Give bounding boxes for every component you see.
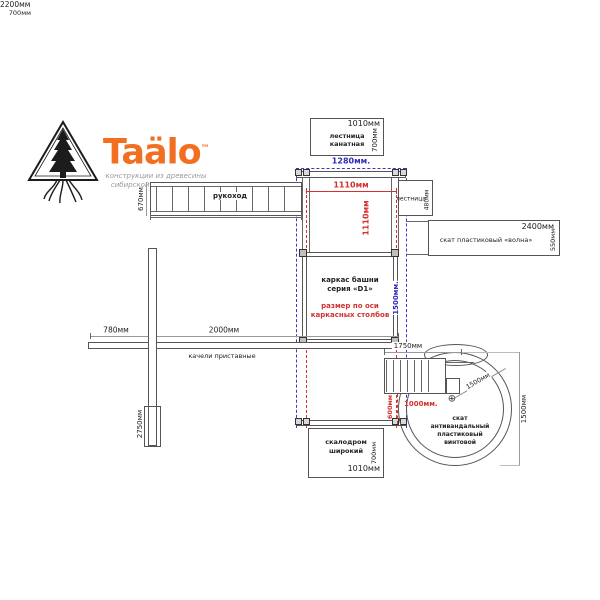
- red-dim-line: [306, 191, 396, 192]
- spiral-slide-label-line2: антивандальный: [424, 423, 496, 430]
- tower-depth-dim-blue: 1500мм.: [392, 281, 400, 315]
- stairs-length-dim: 1750мм: [392, 342, 424, 350]
- spiral-height-dim: 1500мм: [520, 395, 528, 423]
- beam-end-post-square: [295, 169, 302, 176]
- stairs-width-dim-red: 600мм: [386, 395, 394, 419]
- tower-label-line2: серия «D1»: [302, 285, 398, 293]
- swing-post-base: [144, 406, 161, 447]
- monkey-bars-height-dim: 670мм: [137, 187, 145, 211]
- wave-slide-connector-line: [406, 221, 428, 222]
- drawing-canvas: Taälo™ конструкции из древесины сибирско…: [0, 0, 600, 600]
- swing-length-dim: 2000мм: [207, 326, 241, 335]
- tower-bottom-beam: [296, 420, 406, 426]
- brand-wordmark: Taälo™: [103, 131, 210, 171]
- wave-slide-connector-line: [406, 254, 428, 255]
- climbing-wall-width-dim: 1010мм: [330, 464, 380, 473]
- spiral-dim-extension-line: [462, 352, 519, 353]
- monkey-bars-inner-rail: [151, 211, 301, 212]
- wave-slide-width-dim: 550мм: [549, 229, 557, 251]
- beam-end-post-square: [400, 169, 407, 176]
- red-dim-tick: [396, 188, 397, 194]
- monkey-bars-length-dim: 2200мм: [0, 0, 600, 9]
- dim-tick: [150, 214, 151, 220]
- side-ladder-depth-dim: 480мм: [424, 190, 431, 211]
- beam-end-post-square: [295, 418, 302, 425]
- shaft-wall-line: [302, 178, 303, 252]
- brand-text: Taälo: [103, 133, 201, 173]
- tower-label-line1: каркас башни: [302, 276, 398, 284]
- beam-post-square: [392, 169, 399, 176]
- stairs-treads: [386, 360, 432, 392]
- trademark-symbol: ™: [201, 144, 210, 154]
- dim-tick: [398, 333, 399, 339]
- red-dim-tick: [306, 188, 307, 194]
- beam-post-square: [303, 169, 310, 176]
- rope-ladder-label: лестница канатная: [310, 132, 384, 148]
- rope-ladder-label-line2: канатная: [310, 140, 384, 148]
- side-ladder-width-dim: 700мм: [0, 9, 31, 17]
- dim-tick: [384, 349, 385, 355]
- shaft-wall-line: [309, 178, 310, 252]
- stairs-landing-dim-red: 1000мм.: [404, 400, 438, 408]
- tower-inner-frame: [306, 256, 394, 340]
- spiral-slide-label-line4: винтовой: [424, 439, 496, 446]
- outer-width-dim-blue: 1280мм.: [332, 157, 370, 166]
- taalo-tree-logo-icon: [26, 120, 100, 204]
- tower-corner-post: [391, 249, 399, 257]
- stairs-landing-box: [446, 378, 460, 394]
- tower-top-beam: [296, 171, 406, 178]
- spiral-slide-label-line3: пластиковый: [424, 431, 496, 438]
- climbing-wall-depth-dim: 700мм: [370, 442, 378, 464]
- dim-tick: [90, 333, 91, 339]
- wave-slide-label: скат пластиковый «волна»: [440, 236, 533, 244]
- rope-ladder-width-dim: 1010мм: [312, 119, 380, 128]
- tower-note-line1: размер по оси: [302, 302, 398, 310]
- beam-post-square: [303, 418, 310, 425]
- wave-slide-length-dim: 2400мм: [478, 222, 554, 231]
- spiral-dim-extension-line: [500, 465, 520, 466]
- shaft-wall-line: [391, 178, 392, 252]
- tower-note-line2: каркасных столбов: [302, 311, 398, 319]
- swing-label: качели приставные: [188, 352, 255, 360]
- inner-width-dim-red-vertical: 1110мм: [362, 200, 371, 235]
- stairs-length-dim-line: [384, 352, 462, 353]
- monkey-bars-label: рукоход: [211, 192, 249, 200]
- monkey-bars-length-dim-line: [150, 217, 302, 218]
- blue-envelope-top-line: [296, 168, 406, 169]
- stairs-chute-rail: [446, 362, 474, 363]
- stairs-red-dash-line: [397, 394, 398, 424]
- tower-corner-post: [299, 249, 307, 257]
- monkey-bars-height-dim-line: [146, 182, 147, 216]
- swing-dim-line: [90, 336, 398, 337]
- side-ladder-label: лестница: [396, 196, 426, 203]
- swing-post-height-dim: 2750мм: [136, 410, 144, 438]
- rope-ladder-label-line1: лестница: [310, 132, 384, 140]
- spiral-slide-label-line1: скат: [424, 415, 496, 422]
- swing-beam: [88, 342, 402, 349]
- dim-tick: [301, 214, 302, 220]
- brand-subtitle-line1: конструкции из древесины: [100, 172, 212, 181]
- inner-width-dim-red: 1110мм: [333, 181, 368, 190]
- swing-offset-dim: 780мм: [101, 326, 131, 335]
